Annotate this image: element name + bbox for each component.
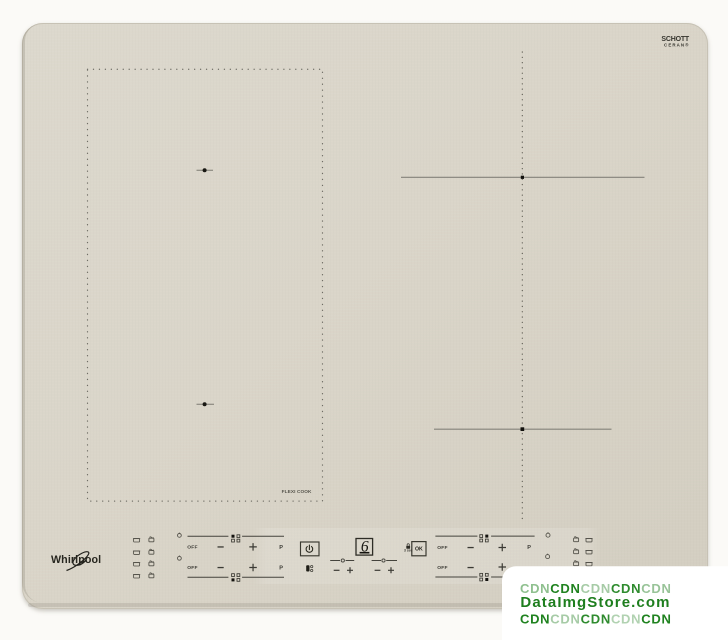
svg-text:DataImgStore.com: DataImgStore.com bbox=[520, 594, 670, 611]
svg-text:OFF: OFF bbox=[187, 565, 197, 571]
svg-text:CDNCDNCDNCDNCDN: CDNCDNCDNCDNCDN bbox=[520, 612, 672, 627]
svg-text:OFF: OFF bbox=[437, 565, 447, 571]
svg-text:P: P bbox=[527, 545, 531, 551]
svg-text:OK: OK bbox=[415, 547, 423, 553]
svg-text:CERAN®: CERAN® bbox=[664, 43, 689, 48]
svg-text:Whirlpool: Whirlpool bbox=[51, 554, 101, 566]
svg-text:FLEXI COOK: FLEXI COOK bbox=[282, 489, 312, 494]
svg-text:OFF: OFF bbox=[187, 545, 197, 551]
svg-text:P: P bbox=[279, 565, 283, 571]
svg-text:P: P bbox=[279, 545, 283, 551]
svg-text:OFF: OFF bbox=[437, 545, 447, 551]
